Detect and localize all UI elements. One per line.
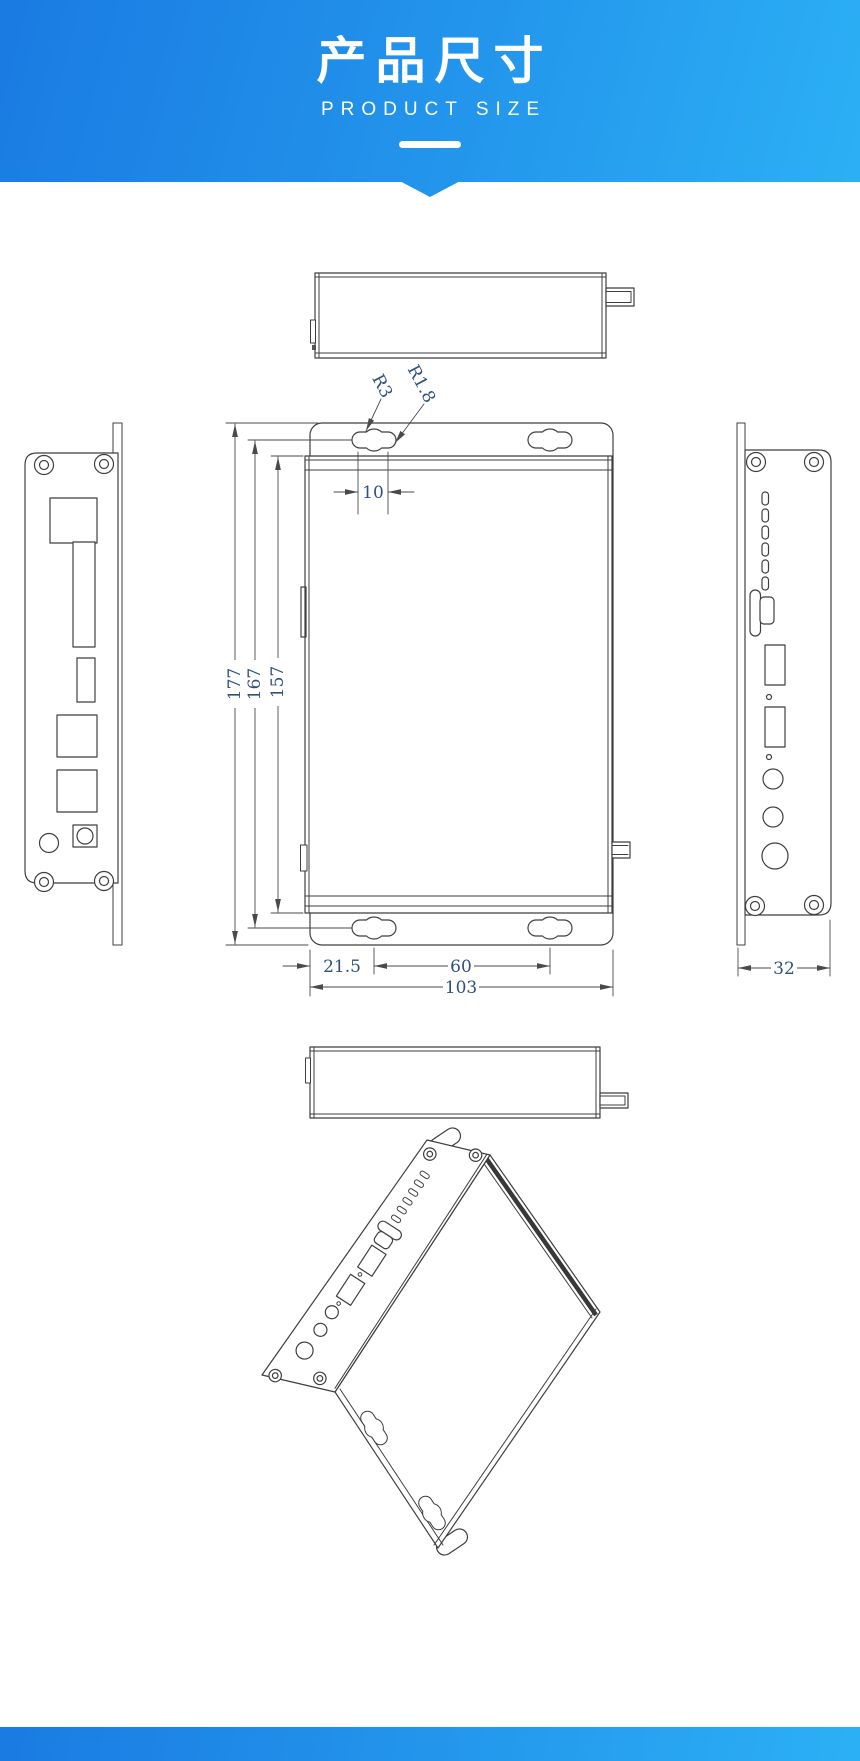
front-left-tab (301, 845, 308, 871)
port-cutout-large (50, 498, 97, 543)
port-cutout-small (77, 658, 95, 702)
mount-slot-top-right (528, 429, 572, 451)
front-right-connector (612, 842, 630, 858)
round-connector-3 (762, 843, 788, 869)
dim-radius-large: R3 (367, 371, 396, 401)
dim-total-height: 177 (225, 668, 245, 700)
page-title: 产品尺寸 (308, 34, 553, 89)
bottom-view-side-tab (306, 1058, 311, 1083)
header-banner: 产品尺寸 PRODUCT SIZE (0, 0, 860, 197)
footer-bar (0, 1727, 860, 1761)
round-connector-2 (763, 807, 783, 827)
dim-edge-to-slot: 21.5 (323, 957, 361, 977)
front-body (305, 456, 612, 913)
right-side-view (737, 423, 831, 945)
dim-depth: 32 (773, 959, 795, 979)
bottom-view (306, 1047, 629, 1118)
port-cutout-square-2 (57, 770, 97, 812)
page-subtitle: PRODUCT SIZE (314, 99, 546, 121)
right-plate-edge (737, 423, 745, 945)
round-cutout (40, 834, 59, 853)
top-view-antenna-connector (606, 288, 634, 306)
bottom-view-antenna-connector (600, 1093, 628, 1108)
port-cutout-slot (73, 542, 95, 647)
dim-slot-length: 10 (362, 483, 384, 503)
dim-radius-small: R1.8 (403, 362, 439, 407)
front-view (301, 423, 631, 945)
top-view-small-notch (312, 345, 316, 350)
title-underline (399, 141, 461, 148)
round-connector-1 (763, 769, 783, 789)
mount-slot-bottom-right (528, 917, 572, 939)
top-view (311, 273, 635, 358)
mount-slot-bottom-left (352, 917, 396, 939)
dim-total-width: 103 (445, 978, 477, 998)
product-size-page: 177 167 157 10 R3 R1.8 21.5 60 (0, 0, 860, 1761)
dim-slot-span-horizontal: 60 (450, 957, 472, 977)
dim-slot-span-vertical: 167 (245, 668, 265, 700)
usb-port-2 (765, 707, 785, 747)
mount-slot-top-left (352, 429, 396, 451)
usb-port-1 (765, 645, 785, 685)
dim-body-height: 157 (268, 666, 288, 698)
isometric-view (262, 1120, 600, 1558)
top-view-side-tab (311, 320, 316, 343)
port-cutout-square-1 (57, 715, 97, 757)
left-side-view (25, 423, 122, 945)
technical-drawing: 177 167 157 10 R3 R1.8 21.5 60 (0, 0, 860, 1761)
